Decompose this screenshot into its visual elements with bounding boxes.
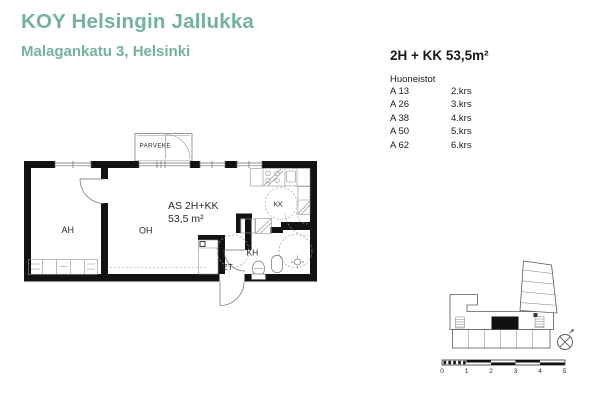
bathroom-turning-circle [279, 235, 312, 268]
room-label-bedroom: AH [62, 225, 75, 235]
window [55, 161, 91, 168]
room-label-entry: ET [223, 263, 233, 272]
window [200, 161, 225, 168]
scale-bar: 0 1 2 3 4 5 [440, 360, 567, 375]
apartment-label: AS 2H+KK [168, 200, 219, 212]
scale-label: 1 [465, 368, 469, 375]
apartment-location-highlight [492, 317, 519, 330]
key-plan-wing [520, 261, 557, 313]
scale-label: 2 [489, 368, 493, 375]
floorplan-sheet: { "header": { "title": "KOY Helsingin Ja… [0, 0, 600, 400]
room-label-balcony: PARVEKE [140, 143, 171, 150]
hall-closet [199, 240, 219, 274]
balcony-door-window [139, 161, 190, 168]
room-label-bathroom: KH [247, 248, 259, 258]
floor-plan: PARVEKE [24, 134, 317, 306]
shower [285, 213, 308, 269]
scale-label: 4 [538, 368, 542, 375]
window [237, 161, 262, 168]
scale-label: 5 [563, 368, 567, 375]
key-plan [450, 261, 574, 350]
room-label-kitchenette: KK [274, 202, 284, 209]
room-label-living-room: OH [139, 226, 153, 236]
area-label: 53,5 m² [168, 213, 204, 225]
scale-label: 3 [514, 368, 518, 375]
closet-row [29, 260, 98, 275]
toilet [252, 261, 266, 280]
bedroom-door [80, 179, 105, 204]
scale-labels: 0 1 2 3 4 5 [440, 368, 567, 375]
entry-door [220, 274, 245, 306]
drawing-layer: PARVEKE [0, 0, 600, 400]
balcony: PARVEKE [135, 134, 192, 162]
north-arrow-icon [558, 330, 574, 350]
key-plan-balconies [453, 330, 551, 349]
scale-label: 0 [440, 368, 444, 375]
interior-walls [101, 168, 310, 274]
